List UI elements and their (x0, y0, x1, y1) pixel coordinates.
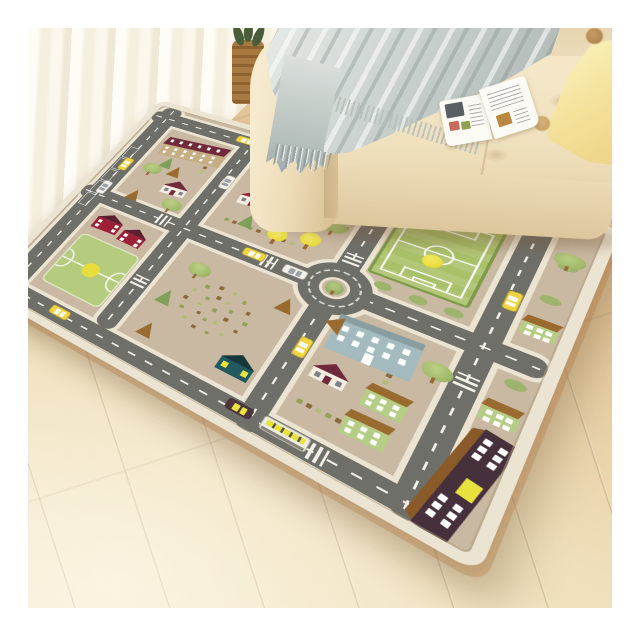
orchard-dot (213, 320, 219, 325)
crop-dot (305, 403, 312, 409)
orchard-dot (205, 285, 211, 289)
orchard-dot (245, 311, 251, 316)
crop-dot (315, 407, 322, 413)
orchard-dot (182, 315, 188, 320)
orchard-dot (205, 296, 211, 300)
magazine-photo (449, 121, 460, 132)
orchard-dot (202, 317, 208, 322)
orchard-dot (179, 304, 185, 308)
tree-trunk (563, 266, 569, 272)
crop-dot (224, 217, 229, 221)
building-greenhouse (477, 397, 523, 434)
magazine-photo (445, 102, 465, 119)
building-house (158, 178, 192, 198)
building-greenhouse (518, 314, 561, 345)
orchard-dot (183, 295, 189, 299)
orchard-dot (241, 301, 247, 306)
tree-canopy (185, 260, 214, 280)
magazine-text (513, 106, 531, 124)
tree-trunk (302, 244, 308, 250)
tree-brown (273, 295, 298, 315)
orchard-dot (192, 288, 198, 292)
magazine-text (486, 83, 524, 111)
brown-pompom (586, 28, 603, 44)
tree-yellow (294, 230, 324, 253)
tree-round (183, 260, 214, 283)
orchard-dot (228, 310, 234, 315)
tree-round (550, 250, 589, 276)
crop-dot (325, 412, 332, 418)
tree-trunk (429, 377, 435, 384)
orchard-dot (242, 322, 248, 327)
orchard-dot (219, 332, 225, 337)
tree-trunk (269, 239, 275, 245)
bush (538, 293, 563, 308)
crop-dot (382, 379, 389, 385)
orchard-dot (211, 308, 217, 313)
tree-canopy (552, 250, 589, 273)
magazine-text (468, 100, 485, 126)
orchard-dot (204, 330, 210, 335)
building-house (307, 356, 354, 392)
crop-dot (199, 170, 204, 173)
room-photo (28, 28, 612, 608)
orchard-dot (232, 329, 238, 334)
crop-dot (202, 166, 207, 169)
orchard-dot (223, 317, 229, 322)
orchard-dot (197, 302, 203, 306)
crop-dot (334, 417, 341, 423)
orchard-dot (219, 286, 225, 290)
tree-pine (154, 287, 178, 307)
magazine-photo (496, 112, 513, 128)
orchard-dot (190, 324, 196, 329)
product-image-canvas (0, 0, 640, 640)
crop-dot (255, 229, 260, 233)
orchard-dot (216, 296, 222, 300)
orchard-dot (196, 310, 202, 315)
tree-brown (135, 319, 159, 339)
magazine-photo (461, 121, 471, 130)
orchard-dot (232, 292, 238, 296)
crop-dot (296, 398, 303, 404)
orchard-dot (225, 301, 231, 306)
